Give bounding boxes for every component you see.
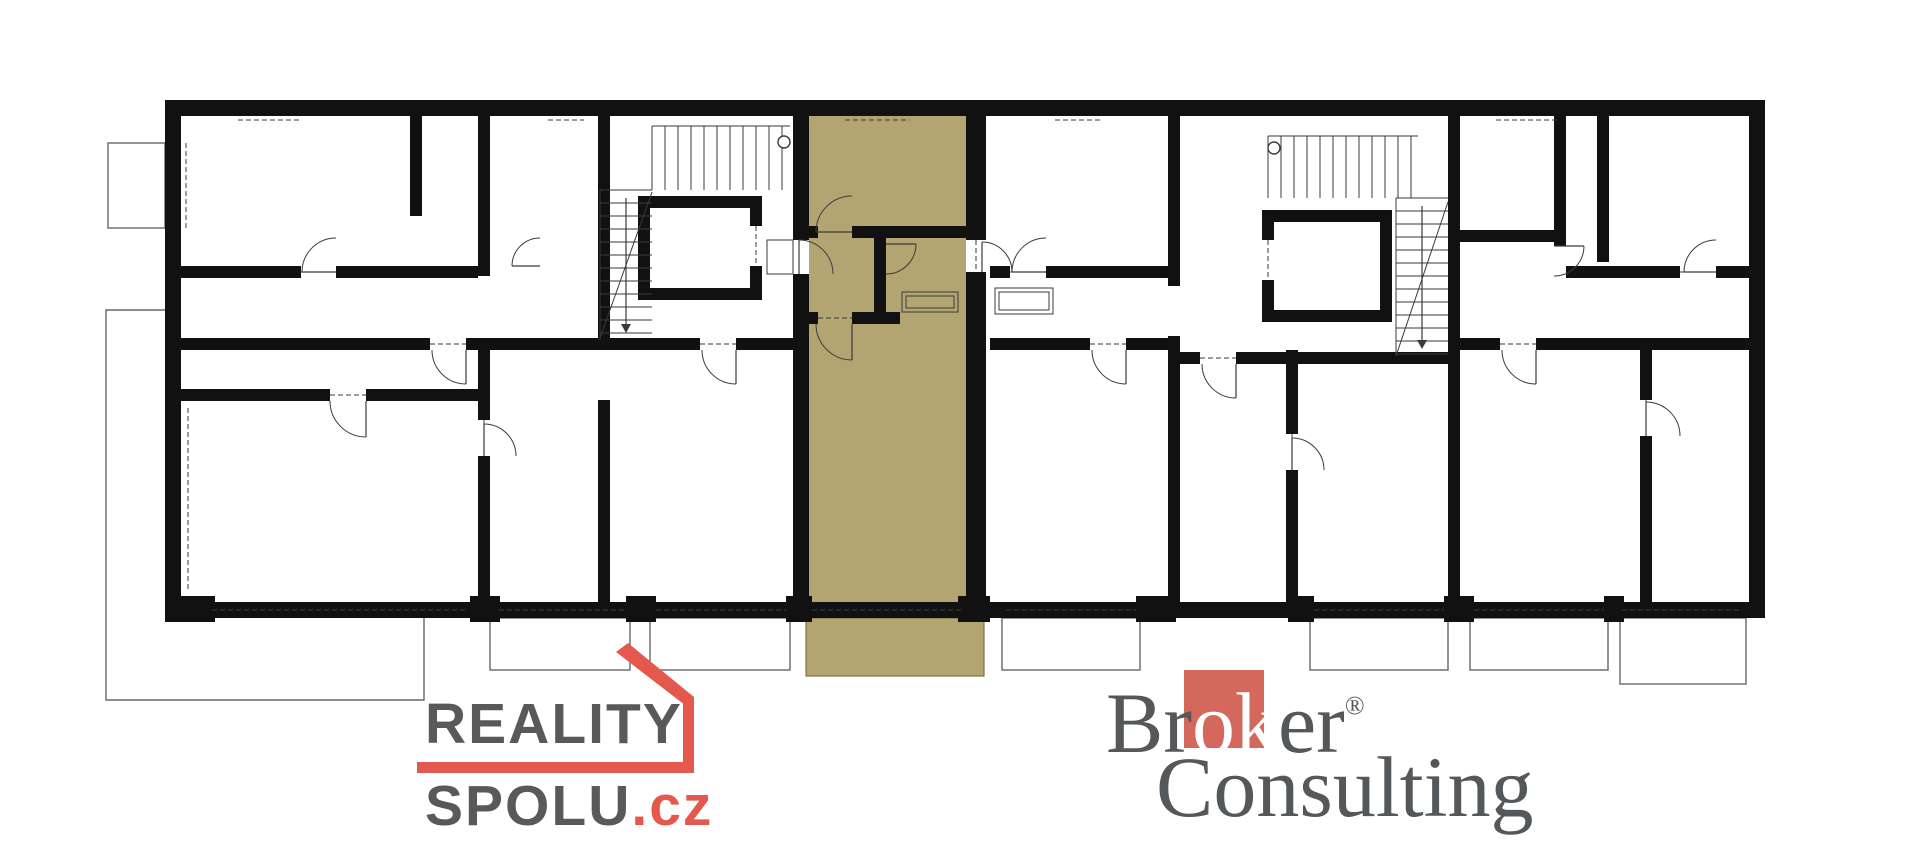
registered-trademark-icon: ®	[1345, 691, 1365, 720]
highlighted-unit	[806, 116, 984, 676]
spolu-logo-word: SPOLU.cz	[425, 778, 713, 835]
broker-consulting-logo: Broker® Consulting	[1100, 656, 1580, 831]
broker-logo-line2: Consulting	[1156, 744, 1534, 830]
reality-spolu-logo: REALITY SPOLU.cz	[417, 688, 727, 854]
floor-plan-drawing	[0, 0, 1920, 854]
floor-plan-page: REALITY SPOLU.cz Broker® Consulting	[0, 0, 1920, 854]
reality-logo-word: REALITY	[425, 696, 683, 753]
cz-tld-label: .cz	[631, 774, 713, 838]
